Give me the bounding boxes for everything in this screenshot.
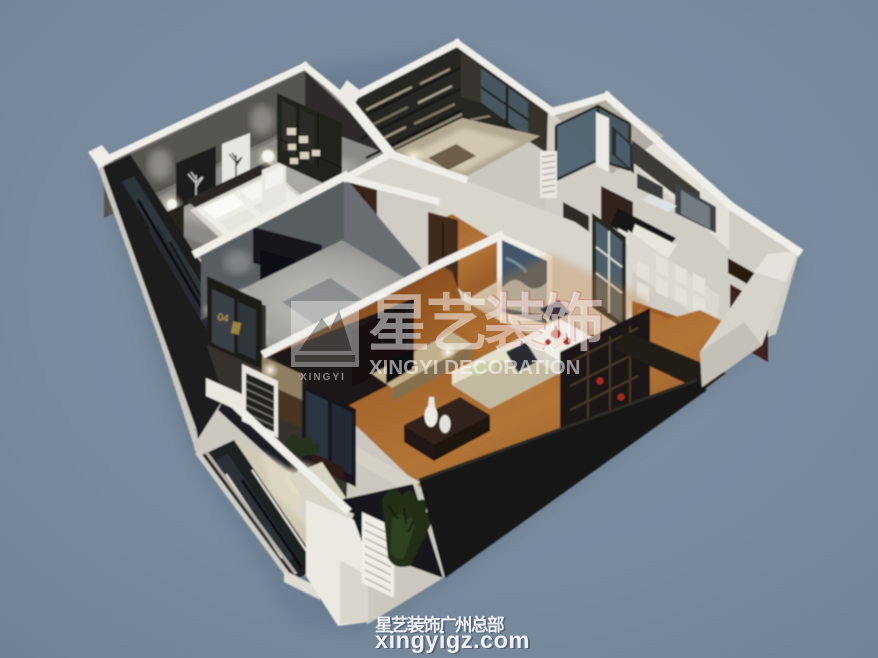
svg-text:XINGYI DECORATION: XINGYI DECORATION [369, 356, 580, 379]
svg-text:星艺装饰: 星艺装饰 [368, 290, 602, 359]
svg-text:XINGYI: XINGYI [300, 372, 346, 383]
svg-text:xingyigz.com: xingyigz.com [375, 627, 530, 653]
